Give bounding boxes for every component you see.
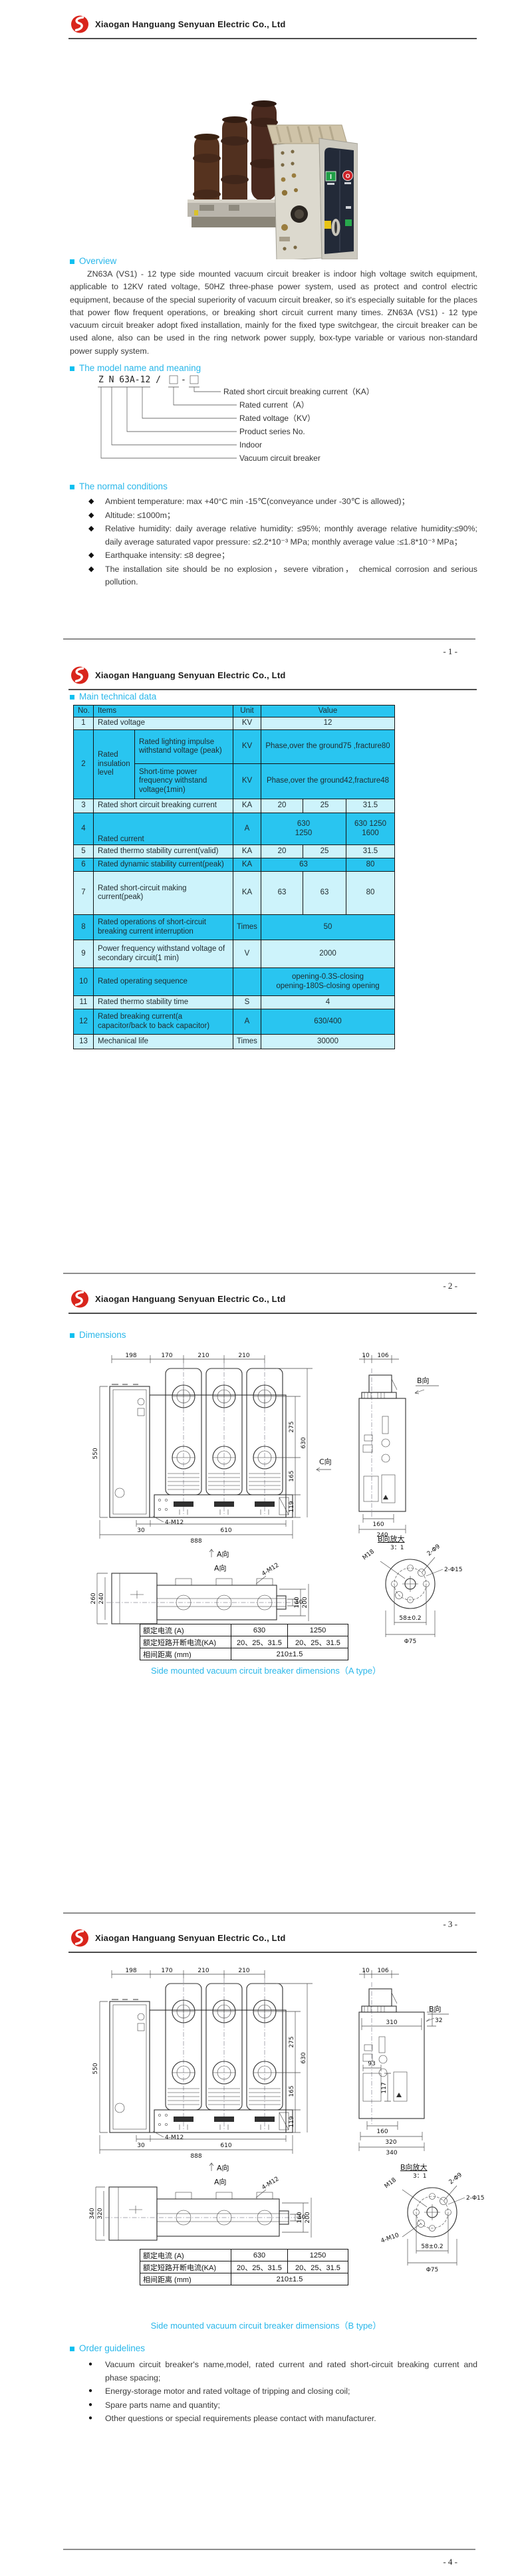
dim-label: 106 <box>377 1352 388 1359</box>
front-view: 198 170 210 210 550 275 165 119 <box>92 1968 313 2172</box>
cell-item: Rated thermo stability time <box>94 996 233 1009</box>
company-name: Xiaogan Hanguang Senyuan Electric Co., L… <box>95 1933 286 1943</box>
detail-scale: 3：1 <box>390 1545 404 1551</box>
detail-label: 2-Φ9 <box>448 2172 464 2186</box>
bolt-label: 4-M12 <box>165 2134 184 2141</box>
front-panel: I O <box>319 138 358 259</box>
model-label-indoor: Indoor <box>239 440 262 450</box>
list-item: ◆Altitude: ≤1000m； <box>88 509 477 523</box>
model-label-series: Product series No. <box>239 427 305 436</box>
cell-value: 80 <box>346 872 395 915</box>
section-bullet-icon <box>70 695 74 700</box>
company-name: Xiaogan Hanguang Senyuan Electric Co., L… <box>95 19 286 29</box>
col-header-no: No. <box>74 706 94 717</box>
caption-a-type: Side mounted vacuum circuit breaker dime… <box>66 1664 465 1676</box>
spec-value: 630 <box>231 1624 288 1636</box>
cell-no: 8 <box>74 915 94 940</box>
cell-value: 20 <box>261 799 303 813</box>
cell-unit: S <box>233 996 261 1009</box>
dimensions-title-text: Dimensions <box>79 1330 126 1340</box>
condition-text: Ambient temperature: max +40°C min -15℃(… <box>105 495 477 509</box>
cell-unit: Times <box>233 1035 261 1049</box>
table-row: 5 Rated thermo stability current(valid) … <box>74 845 395 858</box>
spec-value: 210±1.5 <box>231 1648 348 1660</box>
spec-label: 相间距离 (mm) <box>140 1648 231 1660</box>
section-bullet-icon <box>70 1333 74 1338</box>
company-name: Xiaogan Hanguang Senyuan Electric Co., L… <box>95 1294 286 1304</box>
dim-label: 160 <box>376 2128 388 2135</box>
product-photo: I O <box>188 100 358 259</box>
dim-label: 320 <box>97 2208 104 2219</box>
dim-label: 32 <box>435 2017 442 2024</box>
list-item: ◆Earthquake intensity: ≤8 degree； <box>88 549 477 563</box>
cell-no: 2 <box>74 730 94 799</box>
table-row: 2 Rated insulation level Rated lighting … <box>74 730 395 764</box>
condition-text: Altitude: ≤1000m； <box>105 509 477 523</box>
list-item: ●Other questions or special requirements… <box>88 2412 477 2426</box>
company-name: Xiaogan Hanguang Senyuan Electric Co., L… <box>95 670 286 680</box>
model-code-dash: - <box>181 375 186 385</box>
cell-subitem: Rated lighting impulse withstand voltage… <box>135 730 233 764</box>
overview-paragraph: ZN63A (VS1) - 12 type side mounted vacuu… <box>70 268 477 358</box>
close-button: I <box>326 172 336 185</box>
cell-unit <box>233 968 261 996</box>
indicator-strip <box>346 206 351 209</box>
header-rule <box>68 1313 477 1314</box>
detail-view-b: B向放大 3：1 M18 2-Φ9 2-Φ15 4-M10 58±0.2 Φ75 <box>380 2162 485 2273</box>
spec-value: 20、25、31.5 <box>288 1636 348 1648</box>
dim-label: 93 <box>368 2061 375 2067</box>
view-b-label: B向 <box>417 1376 430 1385</box>
order-title: Order guidelines <box>70 2343 145 2353</box>
cell-subitem: Short-time power frequency withstand vol… <box>135 764 233 799</box>
tech-title-text: Main technical data <box>79 692 156 702</box>
front-view: 198 170 210 210 550 275 165 119 <box>92 1352 332 1559</box>
detail-dim: Φ75 <box>404 1638 417 1645</box>
cell-unit: V <box>233 940 261 968</box>
cell-no: 10 <box>74 968 94 996</box>
table-row: 11 Rated thermo stability time S 4 <box>74 996 395 1009</box>
dim-label: 275 <box>289 1421 295 1432</box>
table-row: 13 Mechanical life Times 30000 <box>74 1035 395 1049</box>
header-rule <box>68 1952 477 1953</box>
company-logo <box>69 1928 90 1948</box>
cell-no: 5 <box>74 845 94 858</box>
spec-value: 20、25、31.5 <box>231 2261 288 2273</box>
view-c-label: C向 <box>319 1457 332 1466</box>
list-item: ●Energy-storage motor and rated voltage … <box>88 2385 477 2398</box>
cell-unit: KA <box>233 799 261 813</box>
dimensions-title: Dimensions <box>70 1330 126 1340</box>
model-leader-lines <box>101 387 237 458</box>
dim-label: 888 <box>190 1538 201 1545</box>
dim-label: 888 <box>190 2153 201 2160</box>
cell-no: 6 <box>74 858 94 872</box>
model-code-box1 <box>170 376 178 384</box>
spec-value: 630 <box>231 2250 288 2261</box>
cell-value: Phase,over the ground42,fracture48 <box>261 764 395 799</box>
header-rule <box>68 689 477 690</box>
conditions-title-text: The normal conditions <box>79 481 168 491</box>
aview-title: A向 <box>214 1563 227 1573</box>
dim-label: 170 <box>161 1968 172 1974</box>
cell-no: 9 <box>74 940 94 968</box>
cell-value: 80 <box>346 858 395 872</box>
cell-value: opening-0.3S-closing opening-180S-closin… <box>261 968 395 996</box>
cell-no: 11 <box>74 996 94 1009</box>
cell-no: 1 <box>74 717 94 730</box>
order-text: Vacuum circuit breaker's name,model, rat… <box>105 2359 477 2384</box>
condition-text: Earthquake intensity: ≤8 degree； <box>105 549 477 563</box>
cell-item: Power frequency withstand voltage of sec… <box>94 940 233 968</box>
dim-label: 210 <box>238 1968 249 1974</box>
col-header-unit: Unit <box>233 706 261 717</box>
spec-value: 210±1.5 <box>231 2273 348 2285</box>
order-text: Other questions or special requirements … <box>105 2412 477 2426</box>
side-plate <box>274 140 322 259</box>
cell-no: 13 <box>74 1035 94 1049</box>
list-item: ●Spare parts name and quantity; <box>88 2399 477 2412</box>
dim-label: 310 <box>386 2019 397 2026</box>
list-item: ◆Relative humidity: daily average relati… <box>88 523 477 549</box>
dim-label: 10 <box>362 1968 370 1974</box>
table-row: 额定短路开断电流(KA) 20、25、31.5 20、25、31.5 <box>140 1636 348 1648</box>
cell-value: 12 <box>261 717 395 730</box>
detail-label: M18 <box>384 2176 398 2190</box>
side-view: 10 106 160 240 B向 <box>359 1352 439 1539</box>
table-row: 8 Rated operations of short-circuit brea… <box>74 915 395 940</box>
cell-unit: A <box>233 1009 261 1035</box>
spec-value: 20、25、31.5 <box>231 1636 288 1648</box>
cell-value: 31.5 <box>346 845 395 858</box>
detail-label: 2-Φ15 <box>444 1567 463 1573</box>
green-label <box>345 219 352 226</box>
cell-unit: Times <box>233 915 261 940</box>
section-bullet-icon <box>70 485 74 489</box>
dimension-drawing-a: 198 170 210 210 550 275 165 119 <box>66 1350 505 1662</box>
chassis-rail <box>188 199 281 227</box>
cell-item: Rated voltage <box>94 717 233 730</box>
table-row: 额定电流 (A) 630 1250 <box>140 2250 348 2261</box>
list-item: ◆The installation site should be no expl… <box>88 563 477 589</box>
conditions-title: The normal conditions <box>70 481 168 491</box>
dim-label: 210 <box>197 1352 209 1359</box>
cell-value: 20 <box>261 845 303 858</box>
dim-label: 117 <box>381 2082 388 2093</box>
diamond-bullet-icon: ◆ <box>88 509 105 519</box>
cell-unit: KA <box>233 845 261 858</box>
cell-value: 63 <box>261 858 346 872</box>
dim-label: 165 <box>289 1470 295 1481</box>
order-title-text: Order guidelines <box>79 2343 145 2353</box>
table-row: 6 Rated dynamic stability current(peak) … <box>74 858 395 872</box>
cell-value: 2000 <box>261 940 395 968</box>
dim-label: 550 <box>92 1448 99 1459</box>
cell-value: 50 <box>261 915 395 940</box>
section-bullet-icon <box>70 2347 74 2351</box>
company-logo <box>69 666 90 685</box>
table-row: 3 Rated short circuit breaking current K… <box>74 799 395 813</box>
order-text: Spare parts name and quantity; <box>105 2399 477 2412</box>
condition-text: Relative humidity: daily average relativ… <box>105 523 477 549</box>
cell-unit: A <box>233 813 261 845</box>
dim-label: 210 <box>197 1968 209 1974</box>
cell-value: 25 <box>303 845 346 858</box>
document-canvas: Xiaogan Hanguang Senyuan Electric Co., L… <box>0 0 512 2576</box>
diamond-bullet-icon: ◆ <box>88 563 105 573</box>
detail-label: 2-Φ15 <box>466 2195 485 2202</box>
dim-label: 30 <box>137 1527 145 1534</box>
model-diagram: Z N 63A-12 / - Rated short circuit break… <box>66 359 479 475</box>
cell-value: 31.5 <box>346 799 395 813</box>
a-direction-view: A向 340 320 10 160 200 4-M12 <box>89 2176 311 2240</box>
cell-value: 30000 <box>261 1035 395 1049</box>
detail-title: B向放大 <box>400 2162 428 2172</box>
dim-label: 210 <box>238 1352 249 1359</box>
cell-item: Rated thermo stability current(valid) <box>94 845 233 858</box>
dim-label: 165 <box>289 2085 295 2097</box>
cell-no: 4 <box>74 813 94 845</box>
header-rule <box>68 38 477 39</box>
diamond-bullet-icon: ◆ <box>88 495 105 505</box>
yellow-label <box>324 221 331 229</box>
aview-title: A向 <box>214 2177 227 2186</box>
footer-rule <box>63 1273 475 1274</box>
cell-item: Mechanical life <box>94 1035 233 1049</box>
table-row: 1 Rated voltage KV 12 <box>74 717 395 730</box>
dim-label: 160 <box>297 2212 303 2223</box>
dim-label: 610 <box>220 2142 231 2149</box>
cell-item: Rated breaking current(a capacitor/back … <box>94 1009 233 1035</box>
col-header-value: Value <box>261 706 395 717</box>
spec-label: 额定短路开断电流(KA) <box>140 1636 231 1648</box>
cell-item: Rated operations of short-circuit breaki… <box>94 915 233 940</box>
cell-value: 63 <box>261 872 303 915</box>
cell-item: Rated operating sequence <box>94 968 233 996</box>
page-number-4: - 4 - <box>0 2557 457 2567</box>
a-direction-view: A向 260 240 10 160 200 4-M12 <box>90 1562 309 1624</box>
dim-label: 200 <box>302 1597 309 1608</box>
table-row: 9 Power frequency withstand voltage of s… <box>74 940 395 968</box>
cell-unit: KA <box>233 872 261 915</box>
dot-bullet-icon: ● <box>88 2385 105 2394</box>
cell-value: 4 <box>261 996 395 1009</box>
cell-item: Rated short circuit breaking current <box>94 799 233 813</box>
spec-value: 1250 <box>288 2250 348 2261</box>
model-code: Z N 63A-12 / <box>98 375 161 385</box>
cell-value: 630/400 <box>261 1009 395 1035</box>
detail-dim: Φ75 <box>426 2267 439 2273</box>
spec-value: 1250 <box>288 1624 348 1636</box>
dot-bullet-icon: ● <box>88 2399 105 2408</box>
model-label-rated-current: Rated current（A） <box>239 400 309 410</box>
cell-value: 63 <box>303 872 346 915</box>
cell-value: 630 1250 1600 <box>346 813 395 845</box>
detail-view-b: B向放大 3：1 M18 2-Φ9 2-Φ15 58±0.2 Φ75 <box>362 1534 463 1645</box>
dim-label: 106 <box>377 1968 388 1974</box>
cell-item: Rated short-circuit making current(peak) <box>94 872 233 915</box>
dim-label: 320 <box>385 2139 396 2146</box>
dim-label: 160 <box>294 1597 301 1608</box>
model-label-vcb: Vacuum circuit breaker <box>239 453 320 463</box>
cell-value: 25 <box>303 799 346 813</box>
close-button-label: I <box>330 174 332 181</box>
order-list: ●Vacuum circuit breaker's name,model, ra… <box>88 2359 477 2426</box>
dim-label: 198 <box>125 1352 136 1359</box>
order-text: Energy-storage motor and rated voltage o… <box>105 2385 477 2398</box>
model-label-rated-voltage: Rated voltage（KV） <box>239 414 315 423</box>
spec-label: 相间距离 (mm) <box>140 2273 231 2285</box>
dim-label: 240 <box>98 1593 105 1604</box>
dim-label: 170 <box>161 1352 172 1359</box>
company-logo <box>69 1289 90 1309</box>
cell-item: Rated dynamic stability current(peak) <box>94 858 233 872</box>
cell-no: 12 <box>74 1009 94 1035</box>
dim-label: 630 <box>301 2052 307 2063</box>
view-a-label: A向 <box>217 1549 229 1559</box>
table-row: 相间距离 (mm) 210±1.5 <box>140 1648 348 1660</box>
cell-no: 3 <box>74 799 94 813</box>
overview-title-text: Overview <box>79 256 116 266</box>
dim-label: 30 <box>137 2142 145 2149</box>
dim-label: 275 <box>289 2036 295 2047</box>
conditions-list: ◆Ambient temperature: max +40°C min -15℃… <box>88 495 477 590</box>
table-row: 12 Rated breaking current(a capacitor/ba… <box>74 1009 395 1035</box>
dim-label: 550 <box>92 2063 99 2074</box>
cell-value: Phase,over the ground75 ,fracture80 <box>261 730 395 764</box>
side-view: 10 106 B向 310 32 93 117 160 <box>359 1968 449 2156</box>
spec-table-b: 额定电流 (A) 630 1250 额定短路开断电流(KA) 20、25、31.… <box>140 2249 348 2285</box>
company-logo <box>69 15 90 34</box>
cell-item-group: Rated insulation level <box>94 730 135 799</box>
technical-data-table: No. Items Unit Value 1 Rated voltage KV … <box>73 705 395 1049</box>
caption-b-type: Side mounted vacuum circuit breaker dime… <box>66 2319 465 2331</box>
tech-title: Main technical data <box>70 692 156 702</box>
bolt-label: 4-M12 <box>165 1519 184 1526</box>
list-item: ◆Ambient temperature: max +40°C min -15℃… <box>88 495 477 509</box>
footer-rule <box>63 1912 475 1914</box>
section-bullet-icon <box>70 259 74 264</box>
condition-text: The installation site should be no explo… <box>105 563 477 589</box>
diamond-bullet-icon: ◆ <box>88 523 105 533</box>
detail-label: M18 <box>362 1548 376 1561</box>
detail-label: 2-Φ9 <box>426 1543 442 1557</box>
dim-label: 630 <box>301 1437 307 1448</box>
table-row: 10 Rated operating sequence opening-0.3S… <box>74 968 395 996</box>
cell-item: Rated current <box>94 813 233 845</box>
detail-scale: 3：1 <box>413 2173 426 2180</box>
table-row: 额定短路开断电流(KA) 20、25、31.5 20、25、31.5 <box>140 2261 348 2273</box>
table-row: 额定电流 (A) 630 1250 <box>140 1624 348 1636</box>
cell-unit: KV <box>233 730 261 764</box>
detail-title: B向放大 <box>378 1534 405 1543</box>
spec-table-a: 额定电流 (A) 630 1250 额定短路开断电流(KA) 20、25、31.… <box>140 1624 348 1660</box>
bolt-label: 4-M12 <box>261 2176 280 2191</box>
table-row: 4 Rated current A 630 1250 630 1250 1600 <box>74 813 395 845</box>
dot-bullet-icon: ● <box>88 2359 105 2368</box>
dim-label: 340 <box>386 2150 397 2156</box>
footer-rule <box>63 638 475 640</box>
dim-label: 198 <box>125 1968 136 1974</box>
spec-label: 额定短路开断电流(KA) <box>140 2261 231 2273</box>
spec-label: 额定电流 (A) <box>140 2250 231 2261</box>
dim-label: 200 <box>305 2212 311 2223</box>
dim-label: 119 <box>289 1501 295 1512</box>
dim-label: 160 <box>372 1521 384 1528</box>
model-code-box2 <box>190 376 198 384</box>
cell-unit: KV <box>233 717 261 730</box>
table-row: 相间距离 (mm) 210±1.5 <box>140 2273 348 2285</box>
dim-label: 340 <box>89 2208 96 2219</box>
detail-dim: 58±0.2 <box>399 1615 421 1622</box>
dimension-drawing-b: 198 170 210 210 550 275 165 119 <box>66 1965 505 2287</box>
dim-label: 10 <box>362 1352 370 1359</box>
model-label-breaking-current: Rated short circuit breaking current（KA） <box>223 387 374 396</box>
page-number-1: - 1 - <box>0 646 457 657</box>
spec-value: 20、25、31.5 <box>288 2261 348 2273</box>
cell-unit: KA <box>233 858 261 872</box>
col-header-items: Items <box>94 706 233 717</box>
dim-label: 119 <box>289 2116 295 2127</box>
bolt-label: 4-M12 <box>261 1562 280 1577</box>
overview-title: Overview <box>70 256 116 266</box>
footer-rule <box>63 2549 475 2550</box>
dim-label: 260 <box>90 1593 97 1604</box>
cell-unit: KV <box>233 764 261 799</box>
cell-value: 630 1250 <box>261 813 346 845</box>
detail-label: 4-M10 <box>380 2232 400 2245</box>
list-item: ●Vacuum circuit breaker's name,model, ra… <box>88 2359 477 2384</box>
spec-label: 额定电流 (A) <box>140 1624 231 1636</box>
dot-bullet-icon: ● <box>88 2412 105 2422</box>
open-button-label: O <box>346 173 350 180</box>
dim-label: 610 <box>220 1527 231 1534</box>
detail-dim: 58±0.2 <box>421 2244 443 2250</box>
table-row: 7 Rated short-circuit making current(pea… <box>74 872 395 915</box>
view-a-label: A向 <box>217 2163 229 2172</box>
diamond-bullet-icon: ◆ <box>88 549 105 559</box>
table-header-row: No. Items Unit Value <box>74 706 395 717</box>
cell-no: 7 <box>74 872 94 915</box>
